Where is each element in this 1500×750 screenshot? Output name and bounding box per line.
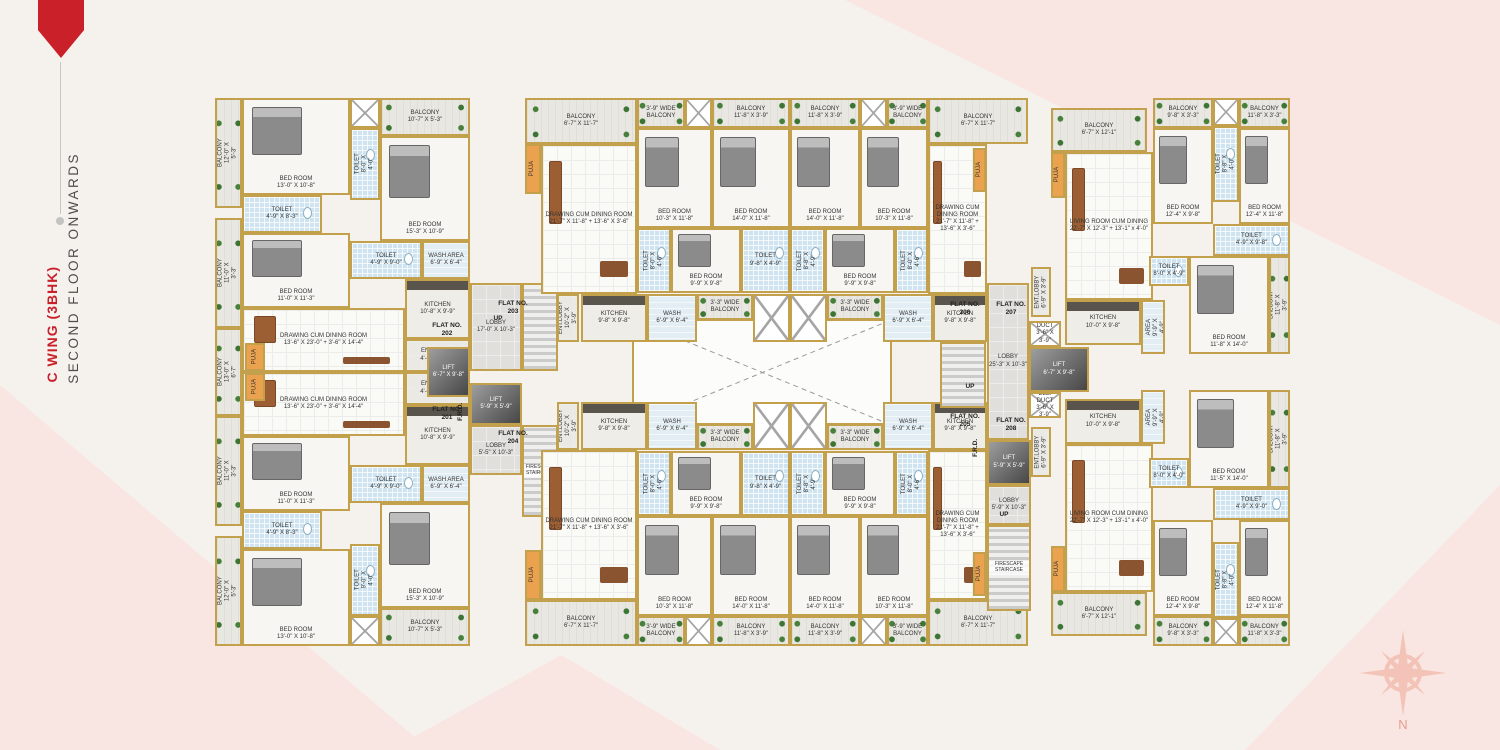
- room-bedroom: BED ROOM14'-0" X 11'-8": [712, 516, 790, 616]
- compass-icon: N: [1358, 628, 1448, 732]
- room-balcony: BALCONY11'-0" X 3'-3": [215, 416, 242, 526]
- room-label: FLAT NO.202: [425, 321, 469, 339]
- room-label: UP: [489, 313, 507, 324]
- room-bedroom: BED ROOM14'-0" X 11'-8": [790, 516, 860, 616]
- room-duct: [860, 98, 887, 128]
- room-bedroom: BED ROOM9'-9" X 9'-8": [825, 451, 895, 516]
- floor-subtitle: SECOND FLOOR ONWARDS: [66, 152, 81, 384]
- room-stair: [522, 283, 558, 371]
- room-balcony: BALCONY11'-8" X 3'-9": [1269, 390, 1290, 488]
- room-duct: [685, 98, 712, 128]
- room-balcony: BALCONY9'-8" X 3'-3": [1153, 98, 1213, 128]
- brand-diamond-icon: [38, 0, 84, 58]
- room-balcony: 3'-3" WIDEBALCONY: [827, 424, 883, 450]
- room-lift: LIFT5'-9" X 5'-9": [987, 440, 1031, 485]
- room-bedroom: BED ROOM11'-8" X 14'-0": [1189, 256, 1269, 354]
- room-balcony: 3'-3" WIDEBALCONY: [697, 424, 753, 450]
- room-balcony: BALCONY10'-7" X 5'-3": [380, 98, 470, 136]
- room-duct: [790, 402, 827, 450]
- room-toilet: TOILET8'-0" X 4'-6": [895, 228, 928, 293]
- room-duct: [790, 294, 827, 342]
- room-bedroom: BED ROOM15'-3" X 10'-9": [380, 503, 470, 608]
- room-toilet: TOILET8'-8" X 4'-9": [790, 451, 825, 516]
- room-lobby: LOBBY17'-0" X 10'-3": [470, 283, 522, 371]
- room-toilet: TOILET9'-8" X 4'-9": [741, 451, 790, 516]
- compass-north-label: N: [1398, 717, 1407, 732]
- room-toilet: TOILET8'-0" X 4'-0": [1149, 458, 1189, 488]
- room-lift: LIFT6'-7" X 9'-8": [1029, 347, 1089, 392]
- room-bedroom: BED ROOM14'-0" X 11'-8": [712, 128, 790, 228]
- room-balcony: BALCONY6'-7" X 12'-1": [1051, 108, 1147, 152]
- room-stairfe: FIRESCAPE STAIRCASE: [987, 525, 1031, 611]
- room-duct: [685, 616, 712, 646]
- room-balcony: BALCONY11'-0" X 3'-3": [215, 218, 242, 328]
- room-living: DRAWING CUM DINING ROOM13'-6" X 23'-0" +…: [242, 308, 405, 372]
- room-bedroom: BED ROOM12'-4" X 11'-8": [1239, 520, 1290, 616]
- room-label: FLAT NO.205: [943, 413, 987, 429]
- room-balcony: BALCONY11'-8" X 3'-3": [1239, 616, 1290, 646]
- room-bedroom: BED ROOM11'-5" X 14'-0": [1189, 390, 1269, 488]
- room-label: FLAT NO.208: [991, 417, 1031, 433]
- room-balcony: BALCONY6'-7" X 12'-1": [1051, 592, 1147, 636]
- room-bedroom: BED ROOM10'-3" X 11'-8": [860, 516, 928, 616]
- room-living: LIVING ROOM CUM DINING22'-7" X 12'-3" + …: [1065, 152, 1153, 300]
- room-bedroom: BED ROOM9'-9" X 9'-8": [671, 451, 741, 516]
- room-bedroom: BED ROOM12'-4" X 9'-8": [1153, 520, 1213, 616]
- room-toilet: TOILET8'-8" X 4'-9": [790, 228, 825, 293]
- room-puja: PUJA: [1051, 152, 1065, 198]
- divider-dot: [56, 217, 64, 225]
- room-lift: LIFT5'-9" X 5'-9": [470, 383, 522, 425]
- room-toilet: TOILET8'-0" X 4'-6": [895, 451, 928, 516]
- room-living: DRAWING CUM DINING ROOM21'-7" X 11'-8" +…: [541, 450, 637, 600]
- floor-plan: BALCONY12'-0" X 5'-3"BED ROOM13'-0" X 10…: [205, 85, 1295, 660]
- room-living: LIVING ROOM CUM DINING22'-7" X 12'-3" + …: [1065, 444, 1153, 592]
- room-kitchen: KITCHEN9'-8" X 9'-8": [581, 294, 647, 342]
- room-wash: WASH AREA9'-9" X 4'-9": [1141, 390, 1165, 444]
- room-balcony: BALCONY11'-8" X 3'-9": [712, 616, 790, 646]
- room-bedroom: BED ROOM9'-9" X 9'-8": [671, 228, 741, 293]
- room-entlobby: ENT.LOBBY10'-2" X 3'-9": [557, 294, 579, 342]
- room-bedroom: BED ROOM10'-3" X 11'-8": [860, 128, 928, 228]
- room-bedroom: BED ROOM13'-0" X 10'-8": [242, 549, 350, 646]
- room-balcony: BALCONY11'-8" X 3'-9": [790, 98, 860, 128]
- room-balcony: BALCONY9'-8" X 3'-3": [1153, 616, 1213, 646]
- room-duct: [860, 616, 887, 646]
- room-label: FLAT NO.204: [491, 429, 535, 447]
- room-wash: WASH6'-9" X 6'-4": [647, 402, 697, 450]
- room-toilet: TOILET8'-0" X 4'-6": [637, 451, 671, 516]
- room-puja: PUJA: [973, 148, 986, 192]
- room-puja: PUJA: [245, 343, 265, 371]
- room-balcony: BALCONY6'-7" X 11'-7": [928, 98, 1028, 144]
- room-toilet: TOILET4'-9" X 9'-8": [1213, 224, 1290, 256]
- room-bedroom: BED ROOM10'-3" X 11'-8": [637, 516, 712, 616]
- room-label: F.R.D.: [967, 431, 985, 465]
- room-stair: [940, 342, 986, 408]
- room-balcony: BALCONY13'-0" X 6'-7": [215, 328, 242, 416]
- room-wash: WASH6'-9" X 6'-4": [883, 294, 933, 342]
- room-wash: WASH6'-9" X 6'-4": [647, 294, 697, 342]
- room-puja: PUJA: [525, 144, 541, 194]
- room-toilet: TOILET4'-9" X 9'-0": [350, 465, 422, 503]
- room-lift: LIFT6'-7" X 9'-8": [427, 347, 470, 397]
- room-duct: [350, 98, 380, 128]
- room-balcony: BALCONY11'-8" X 3'-9": [1269, 256, 1290, 354]
- room-duct: [753, 402, 790, 450]
- room-toilet: TOILET8'-8" X 4'-0": [1213, 126, 1239, 202]
- room-duct: ELE. DUCT3'-6" X 3'-9": [1029, 392, 1061, 418]
- room-bedroom: BED ROOM9'-9" X 9'-8": [825, 228, 895, 293]
- room-wash: WASH AREA9'-9" X 4'-9": [1141, 300, 1165, 354]
- room-kitchen: KITCHEN10'-0" X 9'-8": [1065, 399, 1141, 444]
- room-label: UP: [961, 381, 979, 392]
- room-balcony: BALCONY11'-8" X 3'-3": [1239, 98, 1290, 128]
- room-puja: PUJA: [1051, 546, 1065, 592]
- room-duct: [350, 616, 380, 646]
- room-toilet: TOILET4'-9" X 9'-0": [1213, 488, 1290, 520]
- room-balcony: BALCONY10'-7" X 5'-3": [380, 608, 470, 646]
- room-duct: [1213, 618, 1239, 646]
- room-entlobby: ENT.LOBBY10'-2" X 3'-9": [557, 402, 579, 450]
- room-balcony: BALCONY11'-8" X 3'-9": [790, 616, 860, 646]
- room-label: FLAT NO.206: [943, 301, 987, 317]
- room-wash: WASH AREA6'-9" X 6'-4": [422, 241, 470, 279]
- room-bedroom: BED ROOM15'-3" X 10'-9": [380, 136, 470, 241]
- room-balcony: BALCONY12'-0" X 5'-3": [215, 98, 242, 208]
- room-puja: PUJA: [973, 552, 986, 596]
- room-label: FLAT NO.201: [425, 405, 469, 423]
- room-balcony: 3'-9" WIDEBALCONY: [887, 98, 928, 128]
- room-balcony: BALCONY11'-8" X 3'-9": [712, 98, 790, 128]
- room-wash: WASH6'-9" X 6'-4": [883, 402, 933, 450]
- room-duct: DUCT3'-6" X 3'-9": [1029, 321, 1061, 347]
- wing-title: C WING (3BHK): [44, 266, 60, 382]
- divider-line: [60, 62, 61, 214]
- room-balcony: 3'-3" WIDEBALCONY: [827, 294, 883, 320]
- room-duct: [1213, 98, 1239, 126]
- room-balcony: BALCONY6'-7" X 11'-7": [525, 600, 637, 646]
- room-balcony: BALCONY6'-7" X 11'-7": [525, 98, 637, 144]
- room-kitchen: KITCHEN10'-0" X 9'-8": [1065, 300, 1141, 345]
- room-label: UP: [995, 509, 1013, 520]
- room-kitchen: KITCHEN9'-8" X 9'-8": [581, 402, 647, 450]
- room-toilet: TOILET9'-0" X 4'-0": [350, 544, 380, 616]
- room-toilet: TOILET8'-0" X 4'-9": [1149, 256, 1189, 286]
- room-bedroom: BED ROOM13'-0" X 10'-8": [242, 98, 350, 195]
- room-toilet: TOILET8'-0" X 4'-6": [637, 228, 671, 293]
- pink-wedge-bottom-center: [390, 655, 720, 750]
- room-puja: PUJA: [525, 550, 541, 600]
- room-bedroom: BED ROOM12'-4" X 11'-8": [1239, 128, 1290, 224]
- room-balcony: 3'-9" WIDEBALCONY: [637, 616, 685, 646]
- room-toilet: TOILET4'-9" X 8'-3": [242, 511, 322, 549]
- room-label: FLAT NO.207: [991, 301, 1031, 317]
- room-toilet: TOILET4'-9" X 8'-3": [242, 195, 322, 233]
- room-toilet: TOILET4'-9" X 9'-0": [350, 241, 422, 279]
- room-entlobby: ENT.LOBBY6'-9" X 3'-9": [1031, 427, 1051, 477]
- room-bedroom: BED ROOM10'-3" X 11'-8": [637, 128, 712, 228]
- room-balcony: 3'-9" WIDEBALCONY: [637, 98, 685, 128]
- room-toilet: TOILET8'-0" X 4'-0": [350, 128, 380, 200]
- room-bedroom: BED ROOM11'-0" X 11'-3": [242, 436, 350, 511]
- room-duct: [753, 294, 790, 342]
- room-toilet: TOILET8'-8" X 4'-0": [1213, 542, 1239, 618]
- room-balcony: 3'-3" WIDEBALCONY: [697, 294, 753, 320]
- room-balcony: BALCONY12'-0" X 5'-3": [215, 536, 242, 646]
- room-bedroom: BED ROOM11'-0" X 11'-3": [242, 233, 350, 308]
- room-wash: WASH AREA6'-9" X 6'-4": [422, 465, 470, 503]
- room-toilet: TOILET9'-8" X 4'-9": [741, 228, 790, 293]
- room-bedroom: BED ROOM14'-0" X 11'-8": [790, 128, 860, 228]
- room-living: DRAWING CUM DINING ROOM21'-7" X 11'-8" +…: [541, 144, 637, 294]
- room-entlobby: ENT.LOBBY6'-9" X 3'-9": [1031, 267, 1051, 317]
- room-bedroom: BED ROOM12'-4" X 9'-8": [1153, 128, 1213, 224]
- room-puja: PUJA: [245, 373, 265, 401]
- room-balcony: 3'-9" WIDEBALCONY: [887, 616, 928, 646]
- room-living: DRAWING CUM DINING ROOM13'-6" X 23'-0" +…: [242, 372, 405, 436]
